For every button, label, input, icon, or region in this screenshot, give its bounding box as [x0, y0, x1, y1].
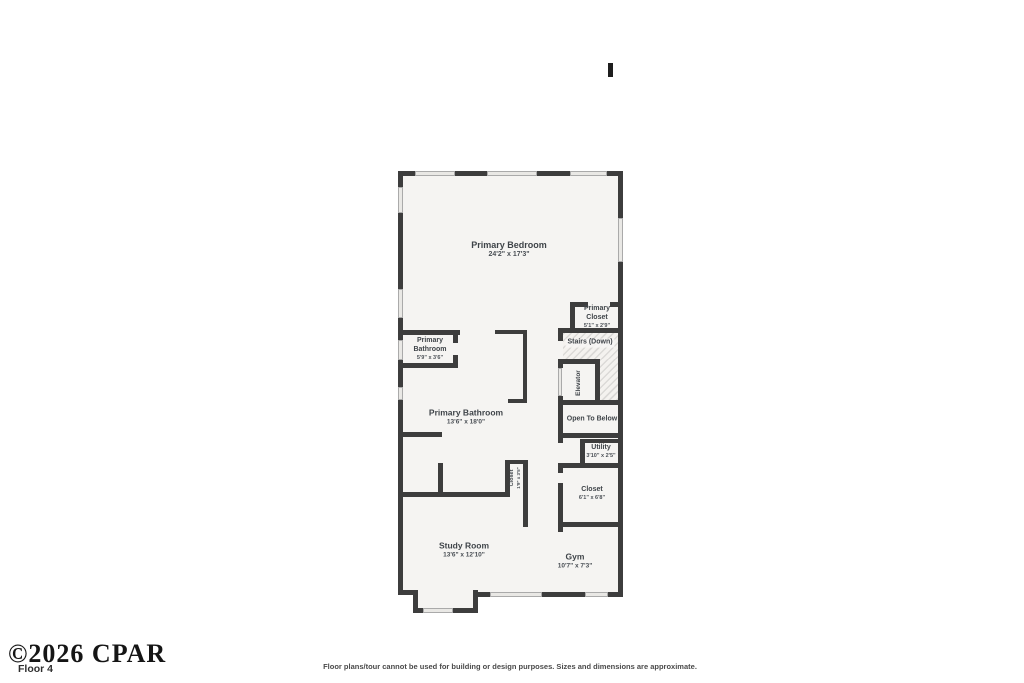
room-label-primary-bathroom-small: Primary Bathroom 5'9" x 3'6": [402, 337, 458, 361]
room-name: Closet: [509, 467, 516, 488]
window: [398, 387, 403, 400]
room-name: Primary Bathroom: [402, 337, 458, 355]
room-label-open-to-below: Open To Below: [567, 416, 617, 425]
compass-fragment-mark: [608, 63, 613, 77]
wall: [558, 359, 563, 368]
window: [398, 187, 403, 213]
room-name: Gym: [558, 552, 593, 563]
room-name: Study Room: [439, 541, 489, 552]
room-name: Primary Bathroom: [429, 408, 503, 419]
wall: [523, 330, 527, 403]
wall: [558, 463, 623, 468]
room-label-primary-closet: Primary Closet 5'1" x 2'9": [574, 305, 620, 329]
room-name: Utility: [586, 444, 615, 453]
wall: [558, 328, 563, 341]
floor-plan-page: Primary Bedroom 24'2" x 17'3" Primary Ba…: [0, 0, 1024, 683]
stairs-hatch: [600, 359, 618, 400]
room-name: Primary Closet: [574, 305, 620, 323]
room-label-closet-small: Closet 1'9" x 3'5": [509, 467, 522, 488]
room-label-primary-bathroom: Primary Bathroom 13'6" x 18'0": [429, 408, 503, 427]
wall: [580, 439, 623, 443]
disclaimer-text: Floor plans/tour cannot be used for buil…: [323, 662, 697, 671]
window: [558, 368, 562, 396]
wall: [558, 463, 563, 473]
wall: [398, 171, 403, 595]
wall: [508, 399, 527, 403]
wall: [400, 330, 460, 335]
room-name: Primary Bedroom: [471, 240, 547, 251]
room-name: Stairs (Down): [565, 339, 614, 348]
window: [398, 289, 403, 318]
room-label-stairs-down: Stairs (Down): [565, 339, 614, 348]
wall: [400, 492, 510, 497]
room-label-gym: Gym 10'7" x 7'3": [558, 552, 593, 571]
room-label-utility: Utility 3'10" x 2'5": [586, 444, 615, 460]
room-label-elevator: Elevator: [575, 370, 583, 396]
wall: [400, 432, 442, 437]
floor-plan: Primary Bedroom 24'2" x 17'3" Primary Ba…: [398, 171, 623, 613]
room-name: Closet: [579, 486, 605, 495]
room-dims: 13'6" x 18'0": [429, 418, 503, 426]
window: [423, 608, 453, 613]
wall: [558, 400, 623, 405]
window: [415, 171, 455, 176]
window: [585, 592, 608, 597]
window: [490, 592, 542, 597]
wall: [400, 363, 458, 368]
window: [618, 218, 623, 262]
room-dims: 1'9" x 3'5": [516, 467, 522, 488]
room-dims: 10'7" x 7'3": [558, 562, 593, 570]
wall: [595, 359, 600, 405]
room-dims: 3'10" x 2'5": [586, 453, 615, 460]
room-name: Elevator: [575, 370, 583, 396]
room-dims: 6'1" x 6'8": [579, 495, 605, 502]
room-label-primary-bedroom: Primary Bedroom 24'2" x 17'3": [471, 240, 547, 260]
floor-number-label: Floor 4: [18, 663, 53, 675]
room-dims: 13'6" x 12'10": [439, 551, 489, 559]
room-dims: 24'2" x 17'3": [471, 251, 547, 260]
wall: [580, 439, 585, 463]
window: [487, 171, 537, 176]
room-dims: 5'1" x 2'9": [574, 322, 620, 329]
window: [570, 171, 607, 176]
wall: [558, 433, 623, 438]
room-label-closet: Closet 6'1" x 6'8": [579, 486, 605, 502]
room-label-study-room: Study Room 13'6" x 12'10": [439, 541, 489, 560]
room-name: Open To Below: [567, 416, 617, 425]
wall: [523, 460, 528, 527]
floor-area: [400, 173, 621, 595]
room-dims: 5'9" x 3'6": [402, 354, 458, 361]
wall: [558, 522, 623, 527]
